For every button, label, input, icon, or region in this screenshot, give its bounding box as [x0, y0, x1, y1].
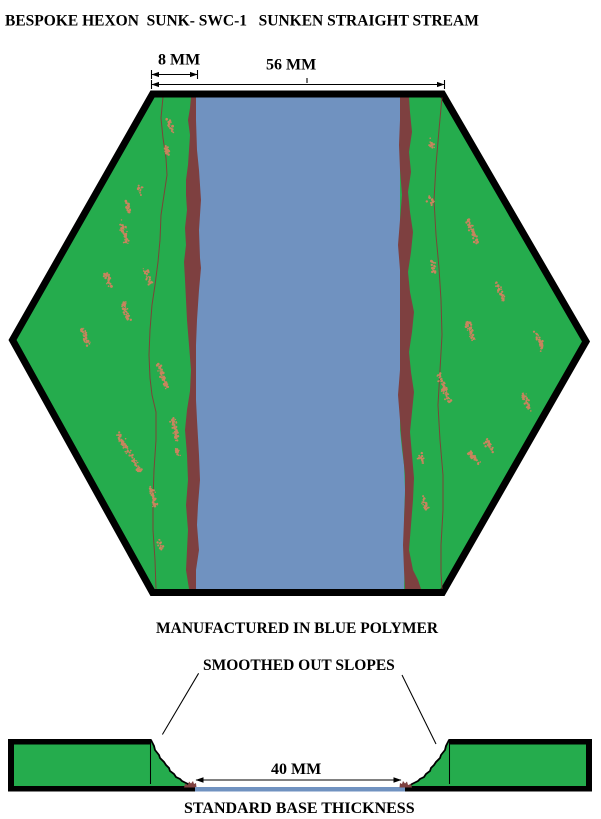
svg-text:SMOOTHED OUT SLOPES: SMOOTHED OUT SLOPES: [203, 657, 395, 674]
svg-text:56 MM: 56 MM: [266, 57, 316, 74]
svg-text:MANUFACTURED IN BLUE POLYMER: MANUFACTURED IN BLUE POLYMER: [156, 620, 439, 637]
svg-text:8 MM: 8 MM: [158, 52, 200, 69]
svg-text:BESPOKE HEXON SUNK- SWC-1 S: BESPOKE HEXON SUNK- SWC-1 SUNKEN STRAIGH…: [5, 13, 479, 30]
svg-text:STANDARD BASE THICKNESS: STANDARD BASE THICKNESS: [184, 800, 415, 817]
svg-text:40 MM: 40 MM: [271, 761, 321, 778]
